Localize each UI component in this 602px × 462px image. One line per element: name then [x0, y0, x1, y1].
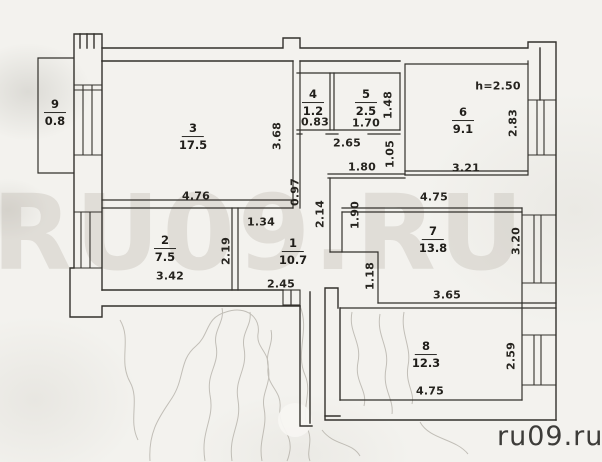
room-2-number: 2: [154, 234, 176, 249]
dim-corridor-height: 1.05: [385, 140, 396, 168]
dim-room7-top: 4.75: [420, 192, 448, 203]
dim-hall-passage: 2.14: [315, 200, 326, 228]
room-8-label: 8 12.3: [412, 340, 440, 370]
dim-hall-top: 1.34: [247, 217, 275, 228]
room-4-number: 4: [302, 88, 324, 103]
room-6-label: 6 9.1: [452, 106, 474, 136]
dim-room5-width: 1.70: [352, 118, 380, 129]
room-1-area: 10.7: [279, 252, 307, 267]
room-5-number: 5: [355, 88, 377, 103]
dim-room7-height: 3.20: [511, 227, 522, 255]
dim-room8-width: 4.75: [416, 386, 444, 397]
room-3-label: 3 17.5: [179, 122, 207, 152]
room-8-area: 12.3: [412, 355, 440, 370]
room-3-number: 3: [182, 122, 204, 137]
dim-corridor-width: 2.65: [333, 138, 361, 149]
room-7-label: 7 13.8: [419, 225, 447, 255]
room-1-label: 1 10.7: [279, 237, 307, 267]
room-6-area: 9.1: [453, 121, 473, 136]
dim-room8-height: 2.59: [506, 342, 517, 370]
room-5-label: 5 2.5: [355, 88, 377, 118]
room-4-label: 4 1.2: [302, 88, 324, 118]
room-9-number: 9: [44, 98, 66, 113]
dim-room6-height: 2.83: [508, 109, 519, 137]
room-9-area: 0.8: [45, 113, 65, 128]
room-6-number: 6: [452, 106, 474, 121]
room-2-area: 7.5: [155, 249, 175, 264]
room-2-label: 2 7.5: [154, 234, 176, 264]
dim-room7-left: 1.90: [350, 201, 361, 229]
room-7-area: 13.8: [419, 240, 447, 255]
dim-room7-bottom: 3.65: [433, 290, 461, 301]
dim-room3-door: 0.97: [290, 178, 301, 206]
hole-punch: [278, 403, 312, 437]
watermark-corner: ru09.ru: [497, 421, 602, 452]
scribble-area: [120, 306, 468, 461]
dim-room2-height: 2.19: [221, 237, 232, 265]
room-3-area: 17.5: [179, 137, 207, 152]
ceiling-height-label: h=2.50: [475, 81, 520, 92]
dim-room3-height: 3.68: [272, 122, 283, 150]
dim-corridor-inner: 1.80: [348, 162, 376, 173]
dim-hall-bottom: 2.45: [267, 279, 295, 290]
room-8-number: 8: [415, 340, 437, 355]
dim-room5-height: 1.48: [383, 91, 394, 119]
floor-plan-scan: RU09.RU: [0, 0, 602, 462]
interior-walls: [102, 61, 556, 400]
dim-room2-width: 3.42: [156, 271, 184, 282]
room-9-label: 9 0.8: [44, 98, 66, 128]
dim-room3-width: 4.76: [182, 191, 210, 202]
room-1-number: 1: [282, 237, 304, 252]
dim-room4-width: 0.83: [301, 117, 329, 128]
dim-room7-notch: 1.18: [365, 262, 376, 290]
room-7-number: 7: [422, 225, 444, 240]
dim-room6-width: 3.21: [452, 163, 480, 174]
